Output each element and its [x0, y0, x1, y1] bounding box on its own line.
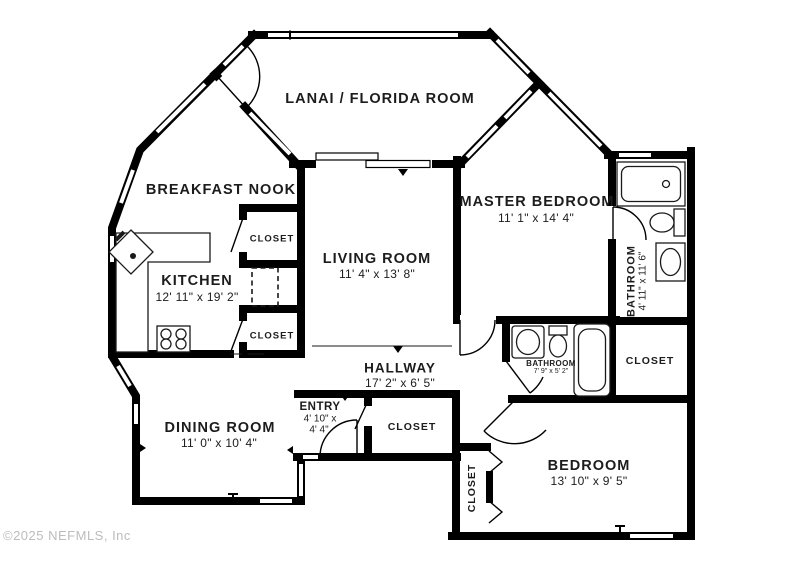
- room-label-master-bathroom: BATHROOM 7' 9" x 5' 2": [526, 359, 576, 375]
- closet-door-icon: [231, 218, 243, 252]
- room-dims-entry-line1: 4' 10" x: [304, 414, 337, 425]
- closet-label-bedroom: CLOSET: [466, 464, 478, 513]
- hall-bathroom-dims: 4' 11" x 11' 6": [638, 245, 649, 317]
- room-dims-entry-line2: 4' 4": [309, 425, 328, 436]
- room-label-master-bedroom: MASTER BEDROOM: [460, 194, 615, 210]
- master-bathroom-dims: 7' 9" x 5' 2": [526, 368, 576, 375]
- room-dims-bedroom: 13' 10" x 9' 5": [551, 474, 628, 488]
- room-label-hallway: HALLWAY: [364, 361, 436, 376]
- room-label-kitchen: KITCHEN: [161, 273, 232, 289]
- stove-icon: [157, 326, 190, 352]
- closet-label-linen: CLOSET: [626, 355, 675, 367]
- room-label-entry: ENTRY: [299, 401, 340, 413]
- master-door-icon: [460, 320, 495, 355]
- room-label-breakfast-nook: BREAKFAST NOOK: [146, 182, 296, 198]
- closet-label: CLOSET: [250, 234, 295, 245]
- room-label-lanai: LANAI / FLORIDA ROOM: [285, 91, 474, 107]
- closet-label: CLOSET: [250, 331, 295, 342]
- toilet-icon: [674, 209, 685, 236]
- room-dims-dining-room: 11' 0" x 10' 4": [181, 436, 257, 450]
- room-label-bedroom: BEDROOM: [548, 458, 631, 474]
- bedroom-door-icon: [484, 401, 546, 444]
- entry-closet-door-icon: [355, 403, 367, 429]
- pantry-dashed: [252, 268, 278, 306]
- room-label-living-room: LIVING ROOM: [323, 251, 431, 267]
- room-label-hall-bathroom: BATHROOM 4' 11" x 11' 6": [626, 245, 649, 317]
- floorplan-drawing: [0, 0, 800, 565]
- doors: [217, 46, 646, 523]
- closet-jamb: [486, 471, 493, 503]
- hall-bathroom-name: BATHROOM: [626, 245, 638, 317]
- room-dims-living-room: 11' 4" x 13' 8": [339, 267, 415, 281]
- shower-icon: [617, 162, 685, 206]
- room-dims-master-bedroom: 11' 1" x 14' 4": [498, 211, 574, 225]
- room-dims-hallway: 17' 2" x 6' 5": [365, 376, 435, 390]
- watermark: ©2025 NEFMLS, Inc: [3, 528, 131, 543]
- toilet-icon: [549, 326, 567, 335]
- hall-bath-door-icon: [613, 207, 646, 240]
- master-bathroom-name: BATHROOM: [526, 359, 576, 368]
- floor-plan: LANAI / FLORIDA ROOM BREAKFAST NOOK KITC…: [0, 0, 800, 565]
- room-label-dining-room: DINING ROOM: [165, 420, 276, 436]
- closet-label-entry: CLOSET: [388, 421, 437, 433]
- room-dims-kitchen: 12' 11" x 19' 2": [155, 290, 238, 304]
